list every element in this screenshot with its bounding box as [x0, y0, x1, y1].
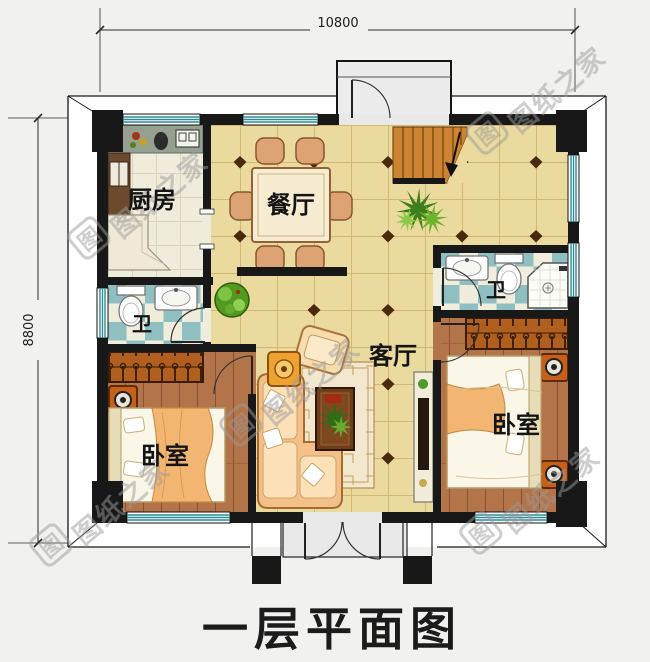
corner-pier — [556, 110, 587, 152]
tv-icon — [418, 398, 429, 470]
corner-pier — [92, 110, 123, 152]
label-bath-left: 卫 — [132, 312, 152, 336]
porch-column — [403, 556, 432, 584]
window-kitchen — [123, 114, 200, 125]
kettle-icon — [154, 132, 168, 150]
porch-column — [252, 556, 281, 584]
dimension-width-label: 10800 — [317, 16, 358, 31]
toilet-icon — [495, 254, 523, 263]
window-bath-right — [568, 243, 579, 297]
window-dining — [243, 114, 318, 125]
window-bedroom-left — [127, 512, 230, 523]
label-living: 客厅 — [369, 342, 417, 370]
window-hall-right — [568, 155, 579, 222]
label-dining: 餐厅 — [267, 191, 315, 219]
porch-top — [337, 61, 451, 118]
stairs — [393, 127, 467, 184]
label-bedroom-left: 卧室 — [141, 442, 189, 470]
plant-bush-icon — [215, 283, 249, 317]
label-bath-right: 卫 — [486, 278, 506, 302]
label-bedroom-right: 卧室 — [492, 411, 540, 439]
plan-title: 一层平面图 — [202, 602, 462, 656]
dining-chair — [296, 138, 324, 164]
floor-plan-drawing: 10800 8800 — [0, 0, 650, 662]
pillow — [123, 417, 145, 434]
dimension-height-label: 8800 — [22, 313, 37, 346]
label-kitchen: 厨房 — [128, 186, 176, 214]
floor-plan-page: 10800 8800 — [0, 0, 650, 662]
dining-chair — [256, 138, 284, 164]
toilet-icon — [117, 286, 145, 295]
window-bath-left — [97, 288, 108, 338]
